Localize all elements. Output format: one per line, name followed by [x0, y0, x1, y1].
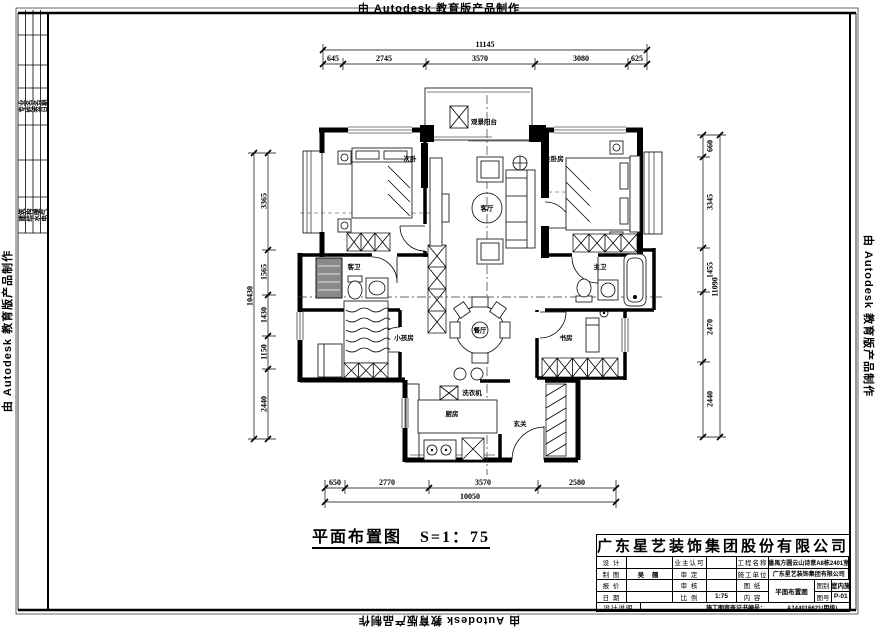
- tb-no-value: P-01: [832, 592, 849, 604]
- tb-draft-label: 制 图: [597, 569, 627, 581]
- dim: 1150: [260, 344, 269, 360]
- dim: 3365: [260, 193, 269, 209]
- dim: 2770: [379, 478, 395, 487]
- strip-label: 建筑: [17, 208, 26, 223]
- dimensions-top: 11145 645 2745 3570 3080 625: [320, 40, 650, 70]
- dimensions-right: 660 3345 1455 2470 2440 11090: [697, 132, 726, 440]
- dim: 3570: [472, 54, 488, 63]
- dim: 2470: [706, 319, 715, 335]
- strip-label: 专业: [17, 99, 26, 113]
- tb-design-label: 设 计: [597, 557, 627, 569]
- dim: 2440: [706, 391, 715, 407]
- dim: 625: [631, 54, 643, 63]
- tb-quote-label: 报 价: [597, 580, 627, 592]
- strip-label: 姓名: [25, 100, 34, 114]
- room-label-washer: 洗衣机: [462, 388, 482, 397]
- plan-title: 平面布置图 S=1：75: [312, 523, 490, 547]
- dim: 650: [329, 478, 341, 487]
- titleblock-company: 广东星艺装饰集团股份有限公司: [597, 535, 849, 557]
- room-label-balcony: 观景阳台: [471, 117, 498, 126]
- tb-no-label: 图号: [815, 592, 832, 604]
- plan-title-text: 平面布置图: [312, 529, 402, 546]
- strip-label: 签名: [32, 100, 41, 114]
- tb-approve-value: [707, 569, 737, 581]
- tb-builder-label: 施工单位: [737, 569, 769, 581]
- dim: 645: [327, 54, 339, 63]
- tb-cat-value: 室内施: [832, 580, 849, 592]
- room-label-dining: 餐厅: [473, 326, 488, 335]
- dim: 2745: [376, 54, 392, 63]
- tb-design-value: [627, 557, 673, 569]
- tb-content-value: 平面布置图: [769, 580, 815, 603]
- tb-draft-value: 吴 翘: [627, 569, 673, 581]
- tb-project-value: 番禺方圆云山诗意A8栋2401室: [769, 557, 849, 569]
- strip-label: 日期: [40, 99, 49, 113]
- dim-top-total: 11145: [475, 40, 494, 49]
- room-label-kids: 小孩房: [393, 333, 414, 342]
- tb-quote-value: [627, 580, 673, 592]
- dim: 3570: [475, 478, 491, 487]
- dim: 1430: [260, 307, 269, 323]
- tb-owner-value: [707, 557, 737, 569]
- tb-builder-value: 广东星艺装饰集团有限公司: [769, 569, 849, 581]
- plan-title-scale: S=1：75: [420, 529, 490, 546]
- signature-strip: 专业 姓名 签名 日期 建筑 结构 水暖 电气: [17, 10, 49, 233]
- room-label-master-bedroom: 主卧房: [544, 154, 564, 163]
- drawing-sheet: 由 Autodesk 教育版产品制作 由 Autodesk 教育版产品制作 由 …: [0, 0, 878, 628]
- dim: 2580: [569, 478, 585, 487]
- tb-check-value: [707, 580, 737, 592]
- plan-title-underline: [312, 547, 490, 549]
- tb-cert-label: 施工图审查证书编号：: [697, 603, 775, 611]
- tb-note-label: 设计说明: [597, 603, 641, 611]
- tb-date-label: 日 期: [597, 592, 627, 604]
- tb-ratio-label: 比 例: [673, 592, 707, 604]
- room-label-master-bath: 主卫: [594, 262, 608, 271]
- dim: 1565: [260, 264, 269, 280]
- strip-label: 水暖: [32, 208, 41, 222]
- tb-content-label: 内 容: [737, 592, 769, 604]
- dim: 1455: [706, 262, 715, 278]
- dim: 3080: [573, 54, 589, 63]
- tb-cat-label: 图别: [815, 580, 832, 592]
- room-label-guest-bath: 客卫: [347, 262, 362, 271]
- tb-project-label: 工程名称: [737, 557, 769, 569]
- tb-cert-value: A144016621(甲级): [775, 603, 849, 611]
- dim: 660: [706, 140, 715, 152]
- room-label-bedroom2: 次卧: [404, 154, 418, 163]
- strip-label: 结构: [25, 208, 34, 222]
- dim: 2440: [260, 396, 269, 412]
- strip-label: 电气: [40, 208, 49, 222]
- tb-check-label: 审 核: [673, 580, 707, 592]
- dim-right-total: 11090: [711, 277, 720, 297]
- room-label-kitchen: 厨房: [446, 409, 460, 418]
- tb-sheet-label: 图 纸: [737, 580, 769, 592]
- room-label-study: 书房: [560, 333, 574, 342]
- tb-ratio-value: 1:75: [707, 592, 737, 604]
- room-label-living: 客厅: [480, 204, 495, 213]
- tb-note-spacer: [641, 603, 697, 611]
- dimensions-left: 3365 1565 1430 1150 2440 10430: [246, 150, 277, 442]
- dimensions-bottom: 650 2770 3570 2580 10050: [322, 478, 619, 508]
- dim-bottom-total: 10050: [460, 492, 480, 501]
- dim-left-total: 10430: [246, 286, 255, 306]
- tb-owner-label: 业主认可: [673, 557, 707, 569]
- tb-date-value: [627, 592, 673, 604]
- dim: 3345: [706, 194, 715, 210]
- room-label-entry: 玄关: [514, 419, 528, 428]
- tb-approve-label: 审 定: [673, 569, 707, 581]
- title-block: 广东星艺装饰集团股份有限公司 设 计 业主认可 工程名称 番禺方圆云山诗意A8栋…: [596, 534, 850, 612]
